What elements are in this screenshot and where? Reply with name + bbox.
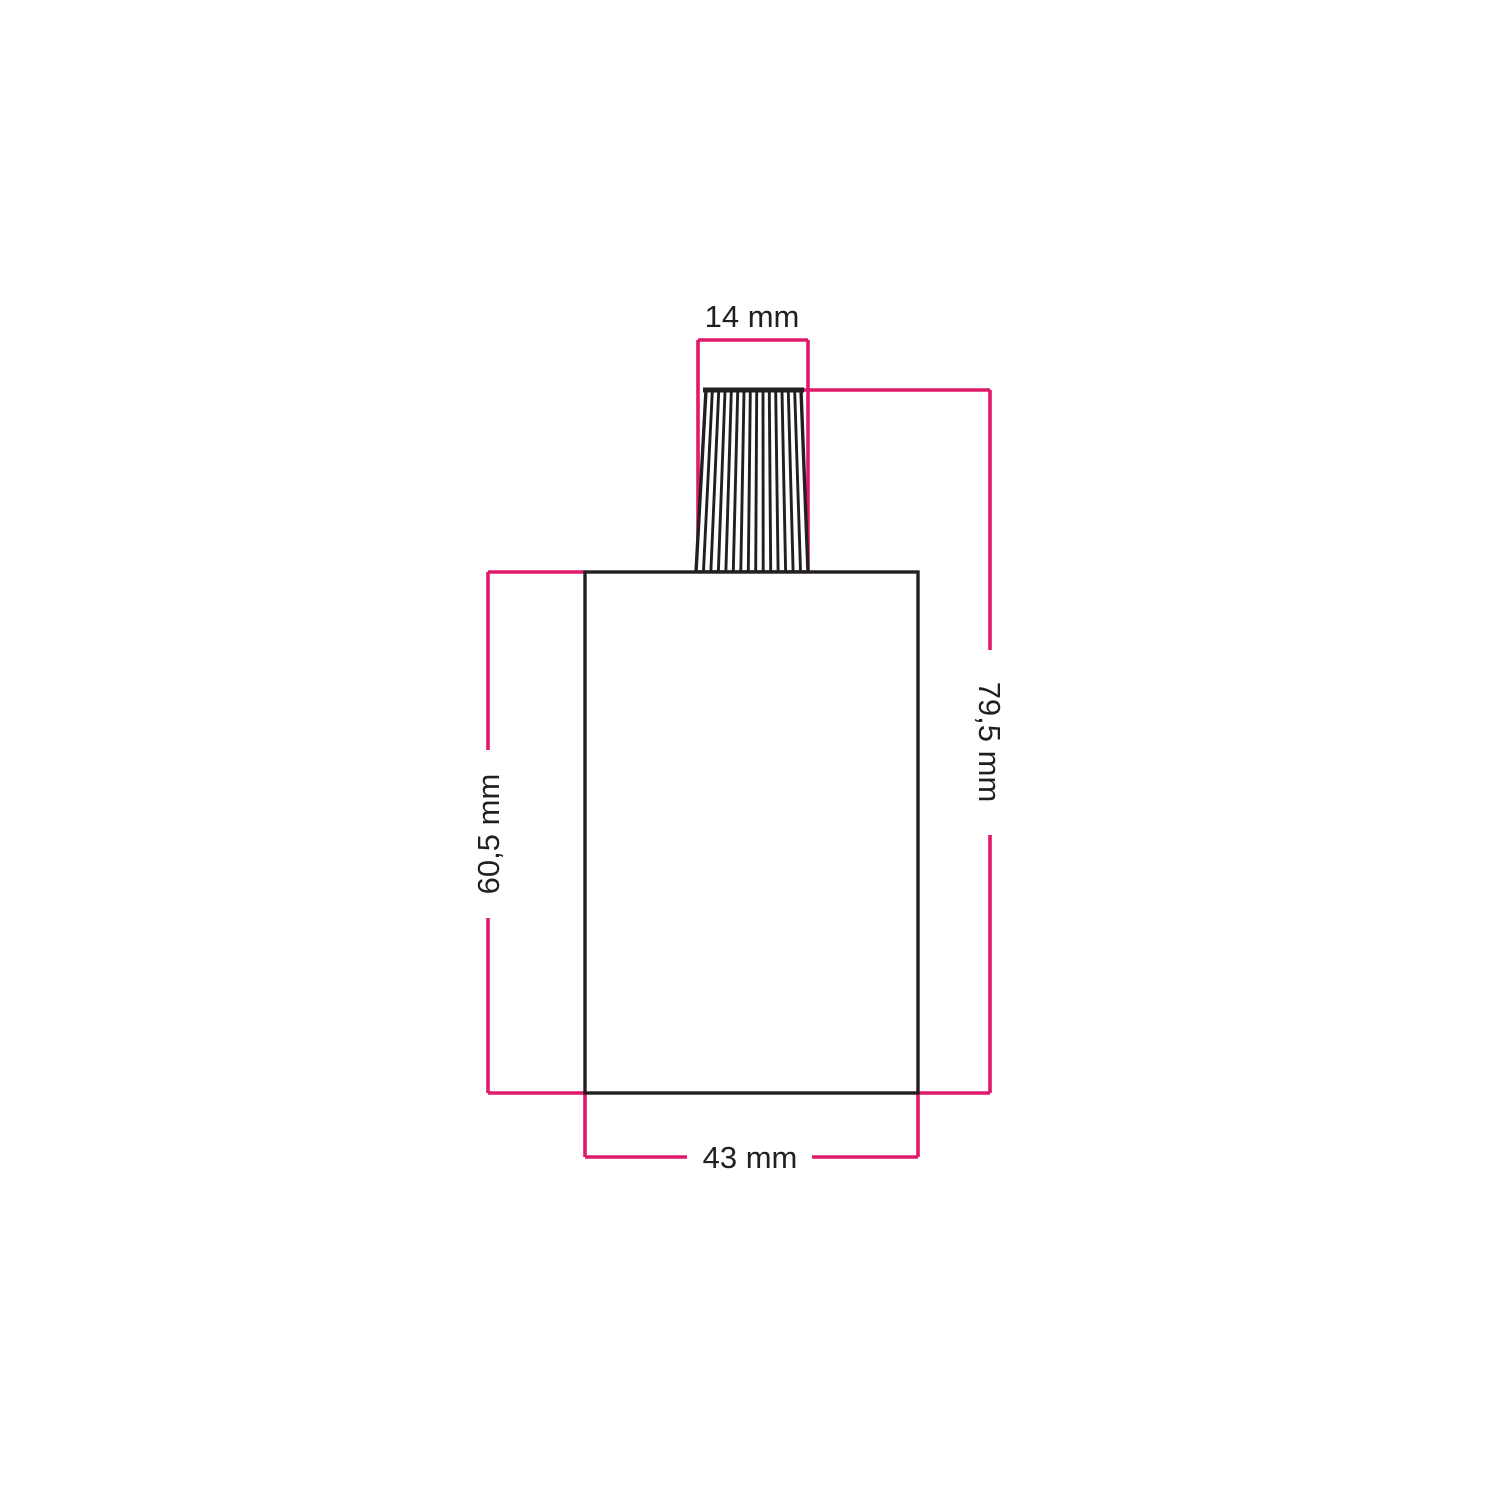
label-body-width: 43 mm xyxy=(703,1140,798,1175)
drawing-canvas: 14 mm 79,5 mm 60,5 mm 43 mm xyxy=(0,0,1500,1500)
label-cable-grip-width: 14 mm xyxy=(705,299,800,334)
product-outline xyxy=(585,390,918,1093)
label-total-height: 79,5 mm xyxy=(972,682,1007,803)
cable-grip-rib-line xyxy=(748,392,750,571)
cable-grip-rib-line xyxy=(769,392,770,571)
cable-grip-rib-line xyxy=(756,392,757,571)
socket-body xyxy=(585,572,918,1093)
label-body-height: 60,5 mm xyxy=(471,774,506,895)
technical-dimension-drawing: 14 mm 79,5 mm 60,5 mm 43 mm xyxy=(0,0,1500,1500)
